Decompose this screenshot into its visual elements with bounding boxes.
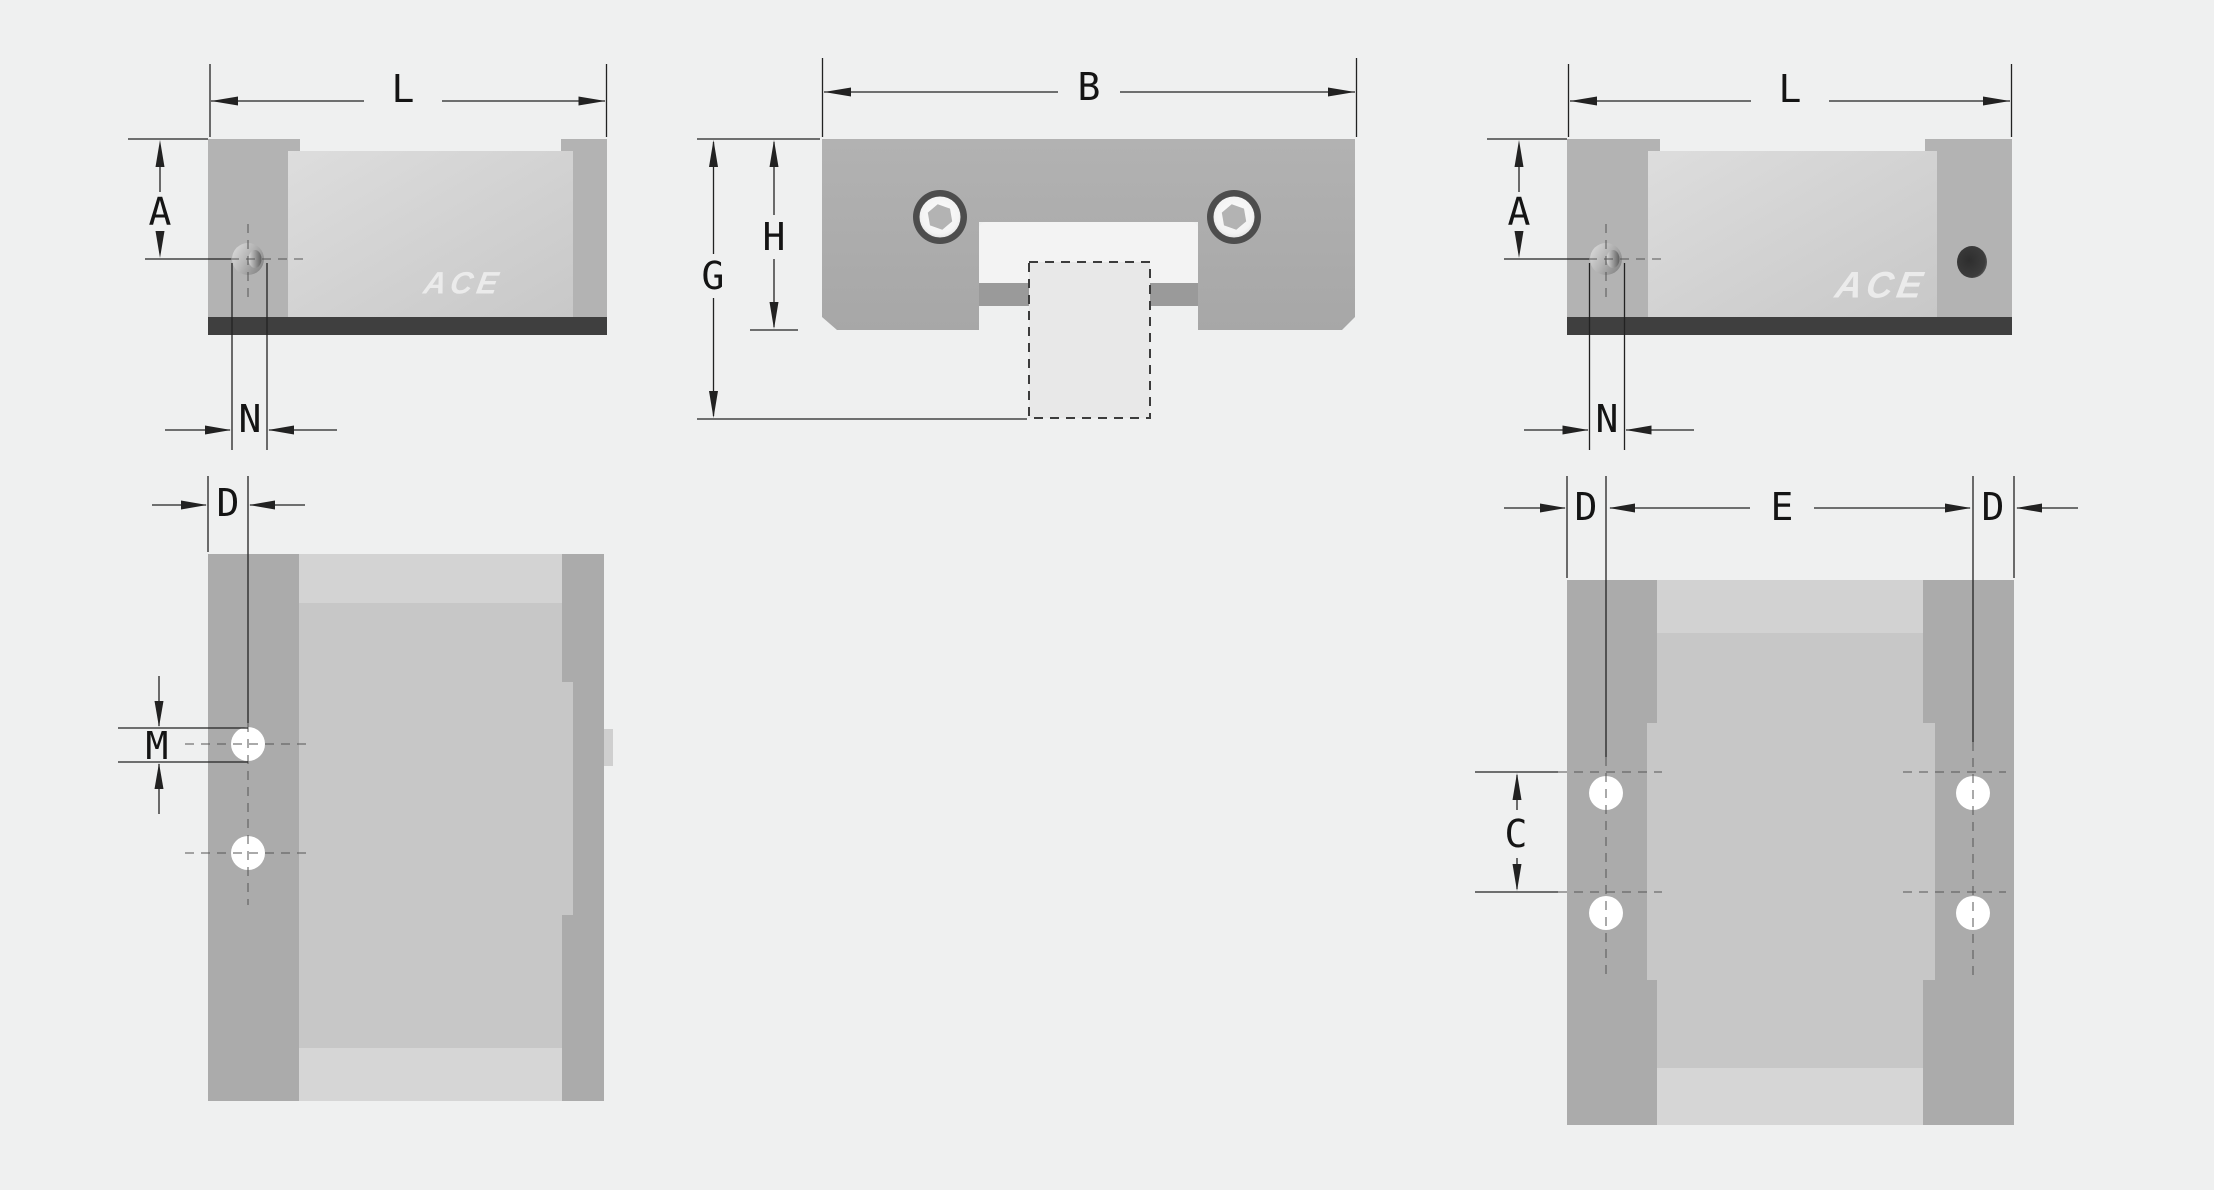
dim-label-hole-span: E — [1771, 488, 1794, 526]
top-view-right — [1475, 476, 2078, 1125]
side-rail-strip-left — [208, 554, 299, 1101]
dim-label-edge-right: D — [1982, 488, 2005, 526]
dim-label-hole-height-right: A — [1508, 193, 1531, 231]
end-cap-left-tab — [288, 139, 300, 151]
side-rail-strip-left — [1567, 580, 1657, 1125]
top-view-left — [118, 476, 613, 1101]
socket-screw-left — [913, 190, 967, 244]
dim-label-body-height: H — [763, 218, 786, 256]
end-cap-right-tab — [561, 139, 573, 151]
socket-screw-right — [1207, 190, 1261, 244]
dim-label-hole-height-left: A — [149, 193, 172, 231]
end-cap-left — [1567, 139, 1648, 335]
end-cap-band-top — [1657, 580, 1923, 633]
dim-label-hole-pitch: C — [1505, 815, 1528, 853]
dim-label-edge-left: D — [1575, 488, 1598, 526]
dim-label-width: B — [1078, 68, 1101, 106]
seal-strip — [208, 317, 607, 335]
end-cap-left-tab — [1648, 139, 1660, 151]
end-cap-left — [208, 139, 288, 335]
dim-label-length-right-view: L — [1779, 70, 1802, 108]
drawing-geometry — [0, 0, 2214, 1190]
end-cap-band-top — [299, 554, 562, 603]
end-cap-band-bottom — [1657, 1068, 1923, 1125]
grease-nipple-tab — [604, 729, 613, 766]
end-cap-band-bottom — [299, 1048, 562, 1101]
brand-watermark-right: ACE — [1833, 267, 1930, 304]
dim-label-hole-diameter: M — [146, 727, 169, 765]
end-cap-right — [1937, 139, 2012, 335]
brand-watermark-left: ACE — [422, 268, 505, 299]
dim-label-length-left-view: L — [392, 70, 415, 108]
end-cap-right — [573, 139, 607, 335]
seal-strip — [1567, 317, 2012, 335]
dim-label-overall-height: G — [702, 257, 725, 295]
grease-port-hole — [1957, 246, 1987, 278]
end-cap-right-tab — [1925, 139, 1937, 151]
front-view — [697, 58, 1357, 419]
dim-label-edge-distance: D — [217, 484, 240, 522]
side-view-right — [1487, 64, 2012, 450]
dim-label-hole-offset-left: N — [239, 400, 262, 438]
drawing-canvas: L A N B G H L A N D M D E D C ACE ACE — [0, 0, 2214, 1190]
rail-phantom-outline — [1029, 262, 1150, 418]
dim-label-hole-offset-right: N — [1596, 400, 1619, 438]
side-view-left — [128, 64, 607, 450]
side-rail-strip-right — [1923, 580, 2014, 1125]
